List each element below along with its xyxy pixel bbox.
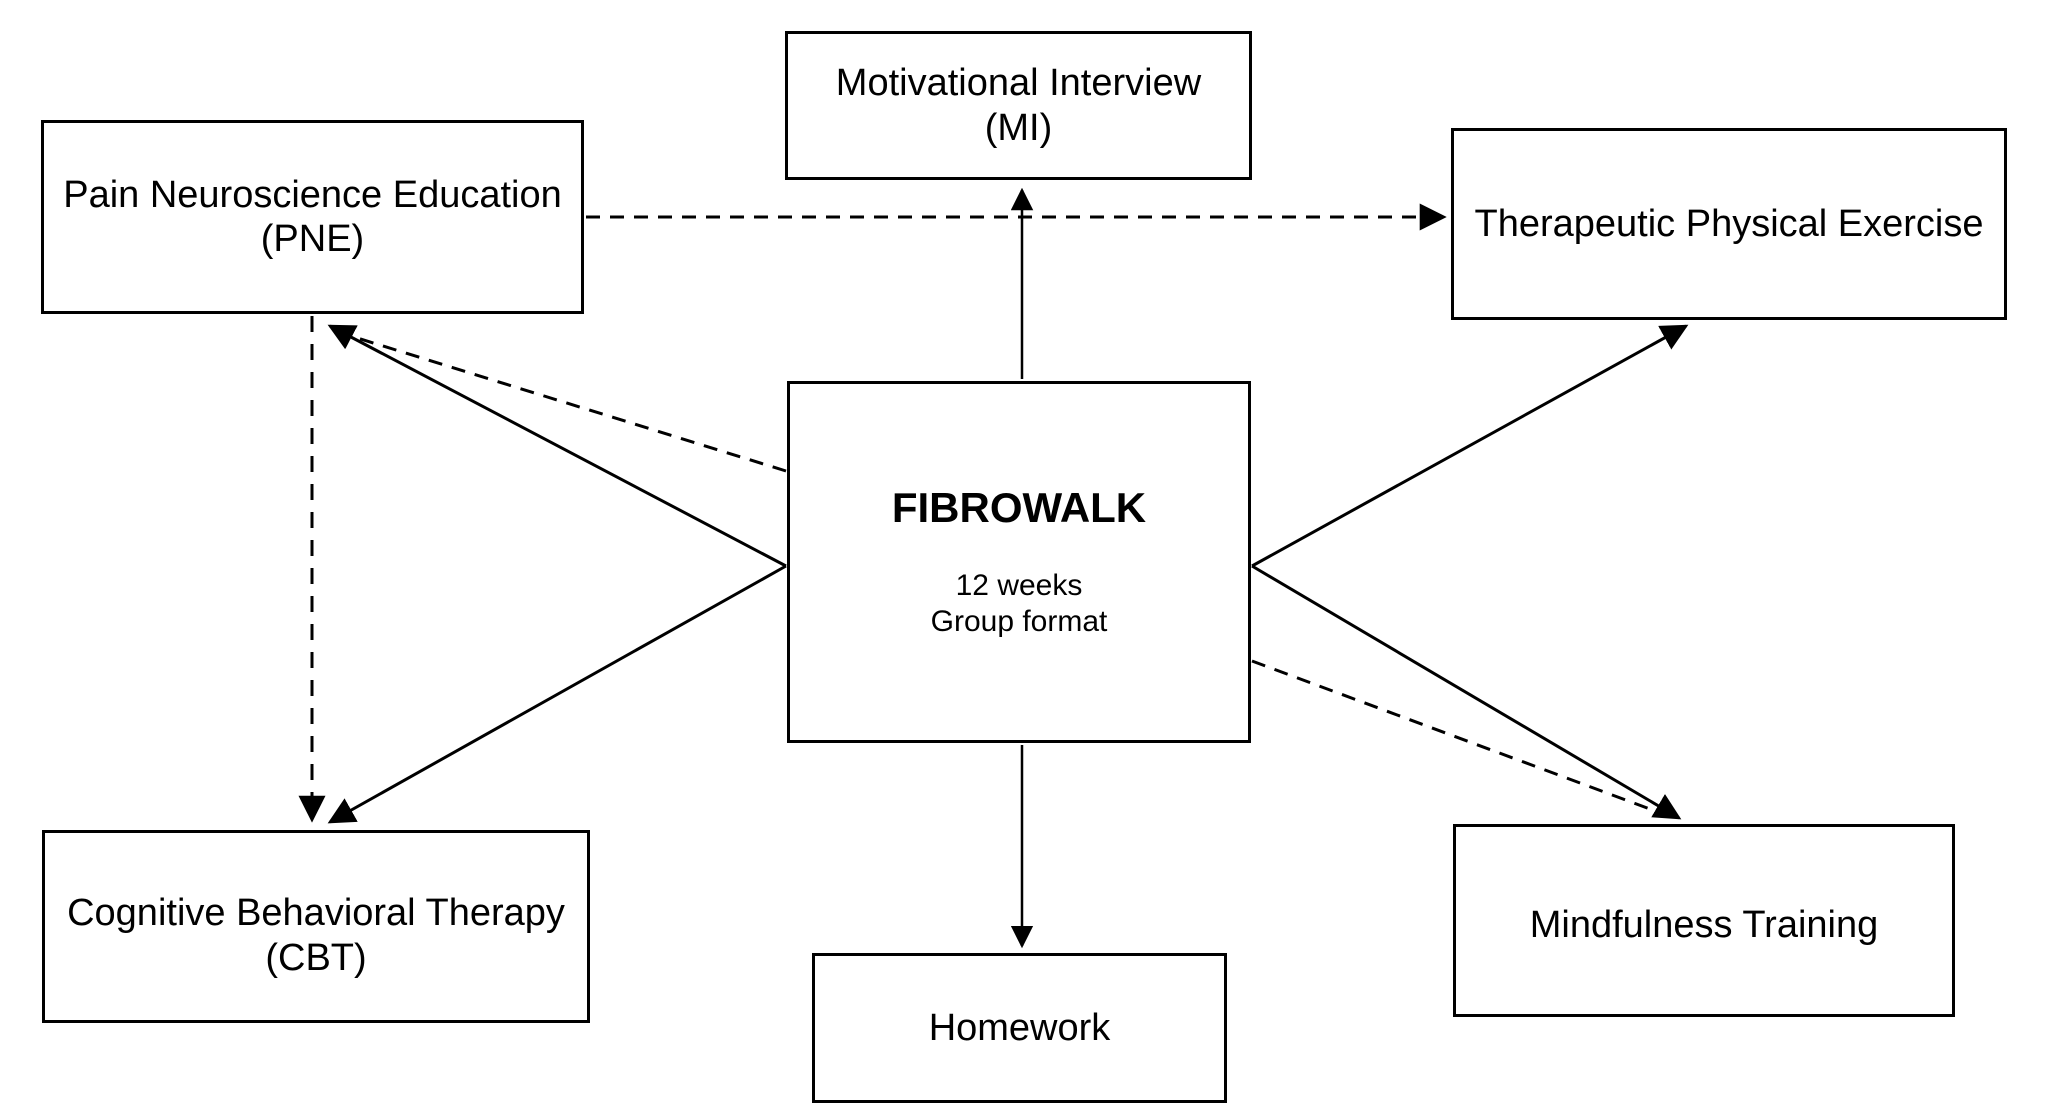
node-fibrowalk-format: Group format xyxy=(931,604,1108,640)
node-pain-neuroscience-education-line1: Pain Neuroscience Education xyxy=(63,173,562,217)
diagram-canvas: Motivational Interview (MI) Pain Neurosc… xyxy=(0,0,2048,1120)
node-motivational-interview-line1: Motivational Interview xyxy=(836,61,1201,105)
edge-fibrowalk-to-pne-dashed-line xyxy=(354,337,786,471)
node-fibrowalk-title: FIBROWALK xyxy=(892,484,1146,533)
edge-fibrowalk-to-mindfulness-dashed-line xyxy=(1252,661,1658,812)
node-therapeutic-physical-exercise: Therapeutic Physical Exercise xyxy=(1451,128,2007,320)
edge-fibrowalk-to-mindfulness-solid-arrow xyxy=(1252,566,1679,818)
node-motivational-interview: Motivational Interview (MI) xyxy=(785,31,1252,180)
node-homework: Homework xyxy=(812,953,1227,1103)
edge-fibrowalk-to-tpe-solid-arrow xyxy=(1252,326,1686,566)
edge-fibrowalk-to-pne-solid-arrow xyxy=(330,326,786,566)
node-pain-neuroscience-education-line2: (PNE) xyxy=(261,217,364,261)
node-fibrowalk-duration: 12 weeks xyxy=(956,568,1083,604)
edge-fibrowalk-to-cbt-solid-arrow xyxy=(330,566,786,822)
node-mindfulness-training-line1: Mindfulness Training xyxy=(1530,903,1879,947)
node-fibrowalk: FIBROWALK 12 weeks Group format xyxy=(787,381,1251,743)
node-motivational-interview-line2: (MI) xyxy=(985,106,1053,150)
node-pain-neuroscience-education: Pain Neuroscience Education (PNE) xyxy=(41,120,584,314)
node-therapeutic-physical-exercise-line1: Therapeutic Physical Exercise xyxy=(1475,202,1984,246)
node-mindfulness-training: Mindfulness Training xyxy=(1453,824,1955,1017)
node-cognitive-behavioral-therapy: Cognitive Behavioral Therapy (CBT) xyxy=(42,830,590,1023)
node-homework-line1: Homework xyxy=(929,1006,1111,1050)
node-cognitive-behavioral-therapy-line1: Cognitive Behavioral Therapy xyxy=(67,891,565,935)
node-cognitive-behavioral-therapy-line2: (CBT) xyxy=(265,936,366,980)
